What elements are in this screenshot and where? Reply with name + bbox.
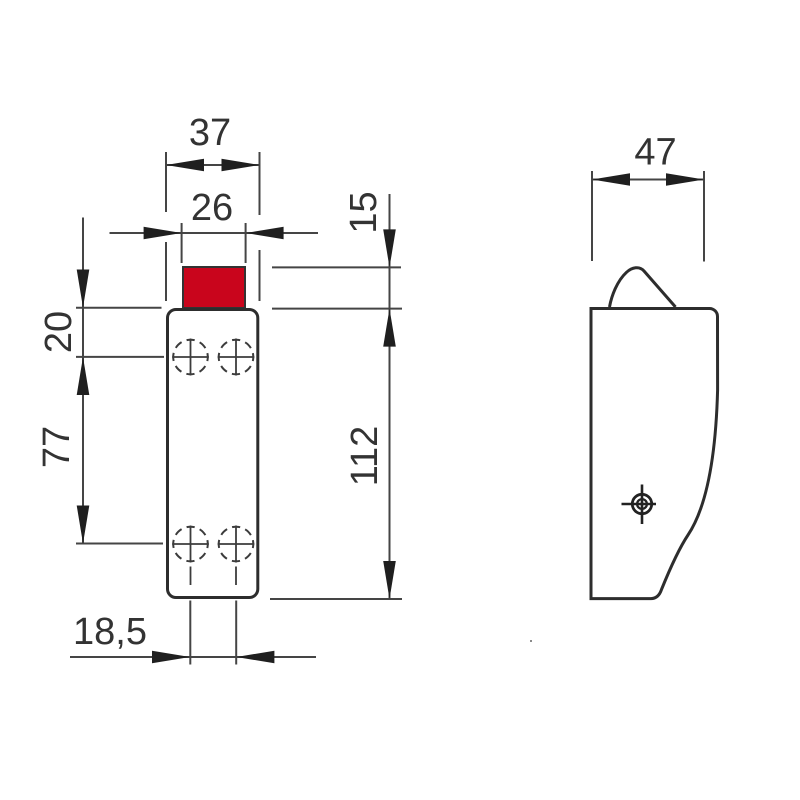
svg-text:20: 20 [38, 311, 80, 353]
svg-text:15: 15 [343, 191, 385, 233]
svg-text:112: 112 [344, 426, 386, 487]
svg-text:47: 47 [634, 132, 676, 174]
svg-text:77: 77 [36, 426, 78, 468]
svg-text:26: 26 [191, 187, 233, 229]
svg-text:18,5: 18,5 [73, 611, 147, 653]
svg-text:37: 37 [189, 112, 231, 154]
